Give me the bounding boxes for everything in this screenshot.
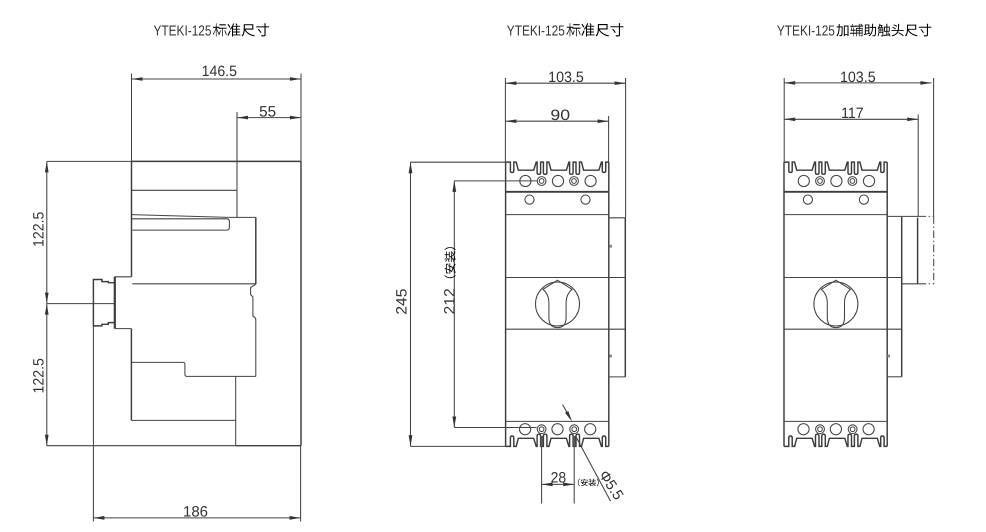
svg-text:245: 245 xyxy=(394,289,411,315)
svg-text:YTEKI-125: YTEKI-125 xyxy=(507,23,565,39)
svg-text:122.5: 122.5 xyxy=(31,358,48,393)
svg-text:YTEKI-125: YTEKI-125 xyxy=(154,23,212,39)
svg-text:103.5: 103.5 xyxy=(840,69,876,86)
svg-text:28: 28 xyxy=(551,469,567,486)
svg-text:55: 55 xyxy=(259,104,276,121)
svg-text:146.5: 146.5 xyxy=(202,63,237,80)
svg-text:90: 90 xyxy=(550,107,570,124)
svg-text:117: 117 xyxy=(841,105,864,122)
svg-text:103.5: 103.5 xyxy=(548,69,584,86)
svg-text:186: 186 xyxy=(183,503,208,520)
svg-text:122.5: 122.5 xyxy=(31,212,48,247)
svg-text:YTEKI-125: YTEKI-125 xyxy=(777,23,835,39)
svg-text:212: 212 xyxy=(442,288,459,314)
